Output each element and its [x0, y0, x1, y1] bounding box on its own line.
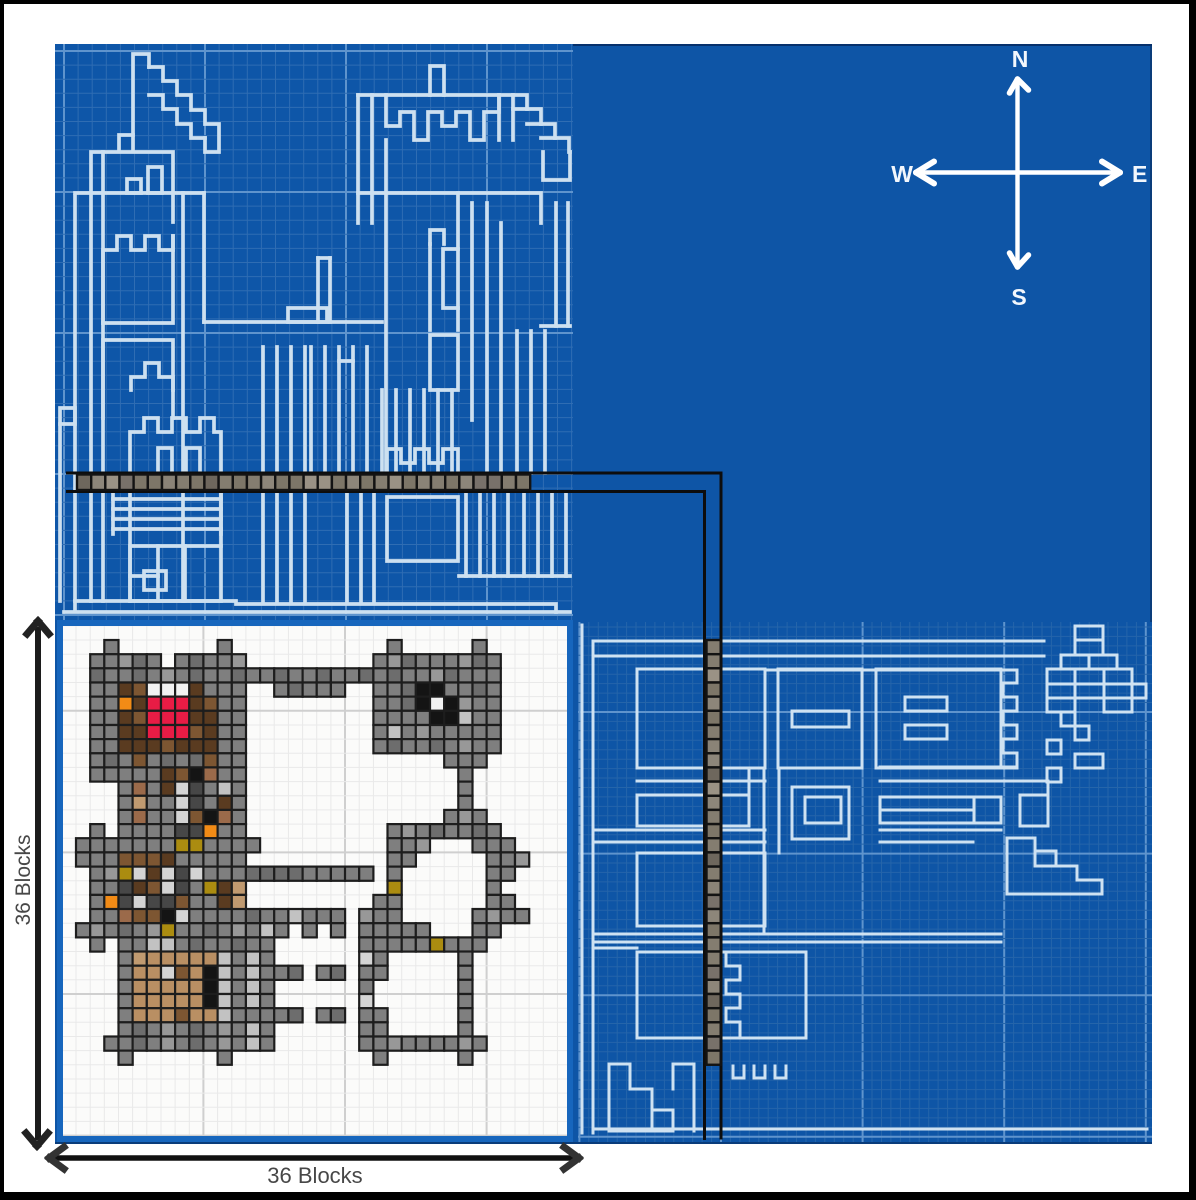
svg-text:S: S — [1011, 284, 1026, 310]
svg-text:W: W — [891, 161, 913, 187]
svg-text:36 Blocks: 36 Blocks — [12, 834, 35, 925]
svg-text:N: N — [1012, 46, 1029, 72]
svg-text:E: E — [1132, 161, 1147, 187]
svg-text:36 Blocks: 36 Blocks — [267, 1163, 362, 1188]
